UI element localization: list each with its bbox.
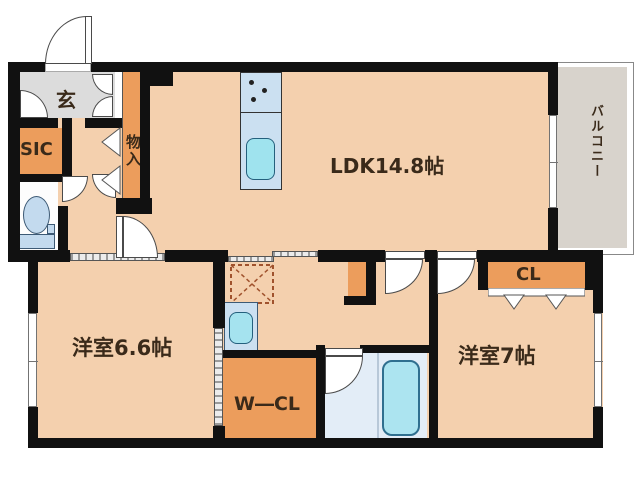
ldk-label: LDK14.8帖 [330, 150, 444, 179]
wall [140, 72, 150, 198]
toilet-icon [23, 196, 50, 234]
entrance-door-leaf [85, 16, 92, 64]
genkan-label: 玄 [56, 84, 76, 113]
washing-machine-space [229, 263, 275, 305]
sic-label: SIC [20, 139, 53, 160]
wall [316, 345, 325, 448]
sliding-door [228, 256, 274, 262]
window [28, 313, 37, 407]
wall [58, 206, 68, 252]
wall [213, 250, 225, 328]
bedroom-east-door-leaf [437, 251, 477, 259]
balcony-label: バルコニー [586, 104, 605, 179]
entrance-door-icon [45, 16, 87, 64]
bedroom-east-label: 洋室7帖 [458, 340, 536, 370]
cl-label: CL [516, 264, 541, 285]
wall [585, 250, 603, 290]
hallway-ldk-door-leaf [116, 216, 123, 258]
bedroom-west-label: 洋室6.6帖 [72, 332, 172, 362]
wall [593, 407, 603, 448]
wall [344, 296, 376, 305]
bifold-door-icon [98, 126, 122, 198]
floor-plan: バルコニー 物入 W―CL CL [0, 0, 640, 480]
washbasin-icon [229, 312, 253, 344]
toilet-tank [19, 234, 55, 249]
bath-divider [377, 352, 379, 440]
toilet-handle [47, 224, 55, 234]
stove-divider [240, 112, 282, 113]
washroom-door-leaf [385, 251, 425, 259]
storage-box [348, 262, 366, 298]
sliding-door [214, 328, 223, 426]
wall [28, 252, 38, 313]
folding-door-icon [488, 288, 585, 310]
wall [140, 72, 173, 86]
wcl-label: W―CL [234, 393, 300, 415]
stove-burner-icon [262, 88, 267, 93]
bath-door-leaf [325, 348, 363, 356]
window [549, 115, 557, 208]
wall [116, 198, 152, 214]
wall [214, 350, 318, 358]
stove-burner-icon [249, 80, 254, 85]
genkan-opening [115, 72, 122, 118]
wall [548, 62, 558, 115]
wall [478, 250, 488, 290]
stove-burner-icon [251, 97, 256, 102]
wall [91, 62, 558, 72]
wall [213, 426, 225, 448]
wall [62, 118, 72, 178]
wall [366, 250, 376, 300]
wall [8, 118, 58, 128]
window [594, 313, 602, 407]
kitchen-sink-icon [246, 138, 275, 180]
wall [360, 345, 437, 353]
sliding-door [272, 251, 318, 257]
wall [548, 208, 558, 252]
bathtub-icon [382, 360, 420, 436]
wall [8, 62, 20, 252]
